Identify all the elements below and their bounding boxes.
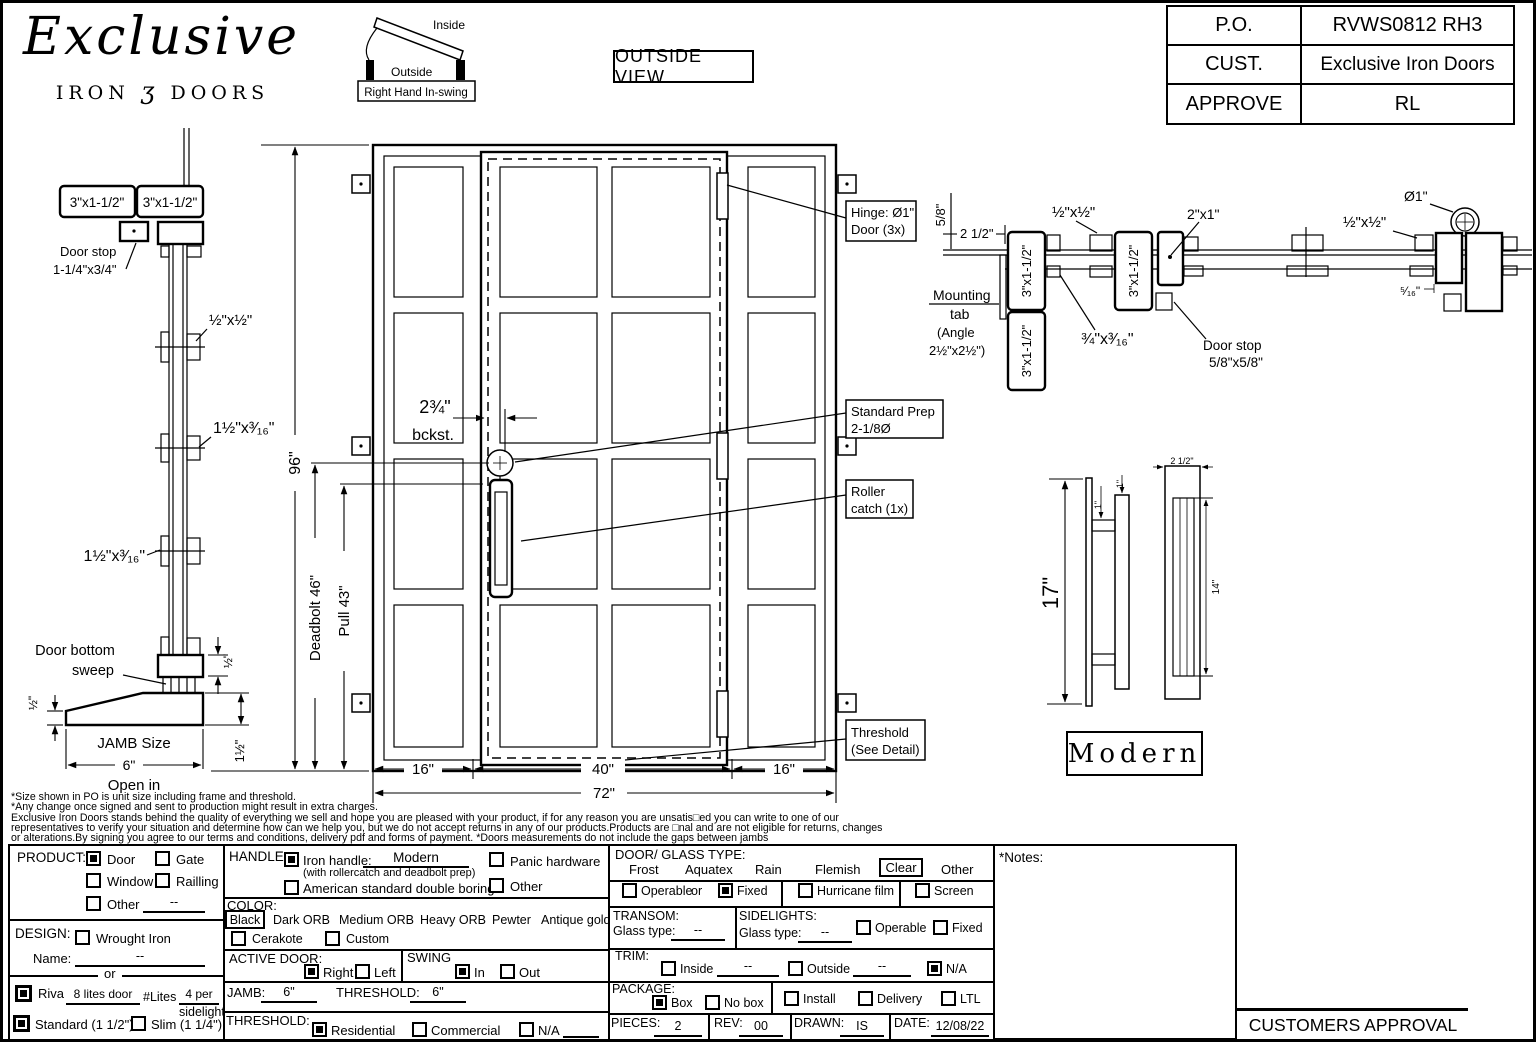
roller-callout-2: catch (1x) (851, 501, 908, 516)
lites-label: #Lites (143, 991, 176, 1005)
sidelights-label: SIDELIGHTS: (739, 910, 817, 924)
jamb-size-label: JAMB Size (97, 735, 170, 752)
jamb-clip-a-label: ½"x½" (209, 312, 252, 329)
section-stop-label-1: Door stop (1203, 338, 1262, 353)
package-box-checkbox[interactable] (652, 995, 667, 1010)
trim-outside-label: Outside (807, 963, 850, 977)
pieces-label: PIECES: (611, 1017, 660, 1031)
design-name-value[interactable]: -- (75, 949, 205, 967)
install-checkbox[interactable] (784, 991, 799, 1006)
sidelights-glass-value[interactable]: -- (798, 925, 852, 943)
backset-value: 2¾" (419, 397, 450, 417)
swing-out-label: Out (519, 966, 540, 980)
jamb-door-bottom (158, 655, 203, 677)
cust-key: CUST. (1205, 53, 1263, 76)
mount-label-4: 2½"x2½") (929, 343, 985, 358)
glass-flemish[interactable]: Flemish (815, 863, 861, 877)
outside-view-label: OUTSIDE VIEW (613, 50, 754, 83)
color-black-option[interactable]: Black (225, 910, 265, 929)
approve-key-cell: APPROVE (1166, 83, 1302, 125)
approve-value: RL (1395, 93, 1421, 116)
product-gate-label: Gate (176, 853, 204, 867)
trim-na-label: N/A (946, 963, 967, 977)
glass-rain[interactable]: Rain (755, 863, 782, 877)
trim-inside-checkbox[interactable] (661, 961, 676, 976)
jamb-label: JAMB: (227, 986, 265, 1000)
active-left-checkbox[interactable] (355, 964, 370, 979)
transom-glass-value[interactable]: -- (671, 923, 725, 941)
rev-value[interactable]: 00 (739, 1019, 783, 1037)
american-boring-checkbox[interactable] (284, 880, 299, 895)
hinge-callout-2: Door (3x) (851, 222, 905, 237)
sidelights-fixed-label: Fixed (952, 922, 983, 936)
mount-label-1: Mounting (933, 287, 991, 303)
threshold-callout-2: (See Detail) (851, 742, 920, 757)
iron-handle-checkbox[interactable] (284, 852, 299, 867)
threshold-na-value[interactable] (563, 1020, 599, 1038)
mount-label-3: (Angle (937, 325, 975, 340)
glass-clear-option[interactable]: Clear (879, 858, 923, 877)
product-door-checkbox[interactable] (86, 851, 101, 866)
section-clip-a-label: ½"x½" (1052, 204, 1095, 221)
dim-5-8: 5/8" (933, 203, 948, 226)
color-pewter[interactable]: Pewter (492, 914, 531, 928)
dim-one-half: 1½" (232, 739, 247, 762)
jamb-size-value: 6" (123, 757, 136, 773)
trim-outside-value[interactable]: -- (853, 959, 911, 977)
dim-2-1-2: 2 1/2" (960, 226, 994, 241)
swing-diagram: Inside Outside Right Hand In-swing (351, 8, 481, 103)
iron-handle-note: (with rollercatch and deadbolt prep) (303, 867, 475, 879)
delivery-checkbox[interactable] (858, 991, 873, 1006)
product-other-label: Other (107, 898, 140, 912)
logo-doors: DOORS (170, 82, 269, 104)
color-heavyorb[interactable]: Heavy ORB (420, 914, 486, 928)
po-key: P.O. (1215, 14, 1252, 37)
section-tube-c-label: 3"x1-1/2" (1126, 244, 1141, 297)
glass-type-label: DOOR/ GLASS TYPE: (615, 848, 746, 862)
handle-backplate (1086, 478, 1092, 706)
swing-right-jamb (456, 60, 465, 80)
handle-bar (1115, 495, 1129, 689)
threshold-ramp (66, 693, 203, 725)
trim-inside-value[interactable]: -- (717, 959, 779, 977)
dim-14: 14" (1211, 579, 1222, 594)
jamb-doorstop-label-1: Door stop (60, 244, 116, 259)
design-name-label: Name: (33, 952, 71, 966)
po-value: RVWS0812 RH3 (1333, 14, 1483, 37)
package-box-label: Box (671, 997, 693, 1011)
screen-label: Screen (934, 885, 974, 899)
backset-label: bckst. (412, 427, 454, 444)
jamb-section-detail: 5/8" 2 1/2" Mounting tab (Angle 2½"x2½")… (923, 168, 1535, 403)
dim-deadbolt: Deadbolt 46" (307, 575, 324, 661)
product-railing-label: Railling (176, 875, 219, 889)
mount-label-2: tab (950, 306, 970, 322)
riva-checkbox[interactable] (15, 985, 32, 1002)
cust-value-cell: Exclusive Iron Doors (1300, 44, 1515, 85)
swing-inside-label: Inside (433, 18, 465, 32)
section-bar-label: 2"x1" (1187, 206, 1220, 222)
dim-40: 40" (592, 761, 614, 778)
riva-label: Riva (38, 987, 64, 1001)
jamb-value[interactable]: 6" (261, 985, 317, 1003)
panic-checkbox[interactable] (489, 852, 504, 867)
threshold-callout-1: Threshold (851, 725, 909, 740)
american-boring-label: American standard double boring (303, 882, 495, 896)
design-wrought-checkbox[interactable] (75, 930, 90, 945)
screen-checkbox[interactable] (915, 883, 930, 898)
swing-caption: Right Hand In-swing (364, 87, 468, 99)
swing-outside-label: Outside (391, 65, 433, 79)
commercial-checkbox[interactable] (412, 1022, 427, 1037)
prep-callout-1: Standard Prep (851, 404, 935, 419)
drawn-label: DRAWN: (794, 1017, 844, 1031)
disclaimer-line-5: or alterations.By signing you agree to o… (11, 833, 791, 843)
delivery-label: Delivery (877, 993, 922, 1007)
sidelights-fixed-checkbox[interactable] (933, 920, 948, 935)
jamb-head-section (158, 222, 203, 244)
cerakote-label: Cerakote (252, 933, 303, 947)
lites-value[interactable]: 4 per (179, 987, 219, 1005)
approve-key: APPROVE (1186, 93, 1283, 116)
transom-label: TRANSOM: (613, 910, 679, 924)
handle-label: HANDLE: (229, 850, 288, 865)
hinge-callout-1: Hinge: Ø1" (851, 205, 915, 220)
section-flat-a-label: ¾"x³⁄₁₆" (1081, 331, 1134, 348)
glass-other[interactable]: Other (941, 863, 974, 877)
swing-label: SWING (407, 951, 451, 965)
threshold-label: THRESHOLD: (226, 1014, 310, 1028)
fixed-label: Fixed (737, 885, 768, 899)
color-darkorb[interactable]: Dark ORB (273, 914, 330, 928)
door-front-view: 96" Deadbolt 46" Pull 43" 2¾" bckst. 16"… (253, 128, 963, 820)
residential-checkbox[interactable] (312, 1022, 327, 1037)
glass-frost[interactable]: Frost (629, 863, 659, 877)
dim-pull: Pull 43" (336, 585, 353, 636)
threshold-na-label: N/A (538, 1024, 560, 1038)
standard-label: Standard (1 1/2") (35, 1018, 134, 1032)
operable-checkbox[interactable] (622, 883, 637, 898)
slim-checkbox[interactable] (131, 1016, 146, 1031)
section-tube-a-label: 3"x1-1/2" (1019, 244, 1034, 297)
section-stop-label-2: 5/8"x5/8" (1209, 355, 1263, 370)
swing-arc (366, 28, 377, 60)
sweep-label-1: Door bottom (35, 643, 115, 659)
threshold-na-checkbox[interactable] (519, 1022, 534, 1037)
product-railing-checkbox[interactable] (155, 873, 170, 888)
disclaimer: *Size shown in PO is unit size including… (11, 792, 791, 843)
handle-detail: 17" 1" 1" 2 1/2" 14" (1038, 453, 1223, 718)
riva-value[interactable]: 8 lites door (66, 987, 140, 1005)
date-label: DATE: (894, 1017, 930, 1031)
sidelights-glass-label: Glass type: (739, 927, 802, 941)
active-right-checkbox[interactable] (304, 964, 319, 979)
logo-iron: IRON (56, 82, 130, 104)
operable-label: Operable (641, 885, 692, 899)
dim-1-a: 1" (1093, 501, 1103, 509)
package-nobox-label: No box (724, 997, 764, 1011)
trim-inside-label: Inside (680, 963, 713, 977)
fixed-checkbox[interactable] (718, 883, 733, 898)
design-or-label: or (98, 967, 122, 981)
swing-out-checkbox[interactable] (500, 964, 515, 979)
hurricane-checkbox[interactable] (798, 883, 813, 898)
section-clip-b-label: ½"x½" (1343, 214, 1386, 231)
install-label: Install (803, 993, 836, 1007)
dim-2-1-2-handle: 2 1/2" (1170, 456, 1193, 466)
glass-aquatex[interactable]: Aquatex (685, 863, 733, 877)
custom-checkbox[interactable] (325, 931, 340, 946)
design-wrought-label: Wrought Iron (96, 932, 171, 946)
package-nobox-checkbox[interactable] (705, 995, 720, 1010)
commercial-label: Commercial (431, 1024, 500, 1038)
color-mediumorb[interactable]: Medium ORB (339, 914, 414, 928)
drawn-value[interactable]: IS (840, 1019, 884, 1037)
product-other-value[interactable]: -- (143, 895, 205, 913)
active-door-leaf (481, 152, 727, 765)
hinge-leaf-large (1466, 233, 1502, 311)
pieces-value[interactable]: 2 (654, 1019, 702, 1037)
operable-or-label: or (691, 885, 702, 899)
handle-front-view (1165, 466, 1200, 699)
sweep-label-2: sweep (72, 663, 114, 679)
dim-96: 96" (287, 451, 304, 474)
swing-left-jamb (366, 60, 374, 80)
handle-other-checkbox[interactable] (489, 878, 504, 893)
jamb-clip-c-label: 1½"x³⁄₁₆" (84, 548, 145, 565)
ltl-checkbox[interactable] (941, 991, 956, 1006)
product-window-label: Window (107, 875, 153, 889)
transom-glass-label: Glass type: (613, 925, 676, 939)
trim-na-checkbox[interactable] (927, 961, 942, 976)
dim-half-right: ½" (221, 654, 235, 668)
po-value-cell: RVWS0812 RH3 (1300, 5, 1515, 46)
prep-callout-2: 2-1/8Ø (851, 421, 891, 436)
notes-label: *Notes: (999, 851, 1043, 866)
panic-label: Panic hardware (510, 855, 600, 869)
handle-other-label: Other (510, 880, 543, 894)
logo-ornament-icon: ʒ (141, 77, 160, 105)
trim-label: TRIM: (615, 950, 649, 964)
trim-outside-checkbox[interactable] (788, 961, 803, 976)
residential-label: Residential (331, 1024, 395, 1038)
jamb-tube-b-label: 3"x1-1/2" (143, 195, 198, 210)
jamb-tube-a-label: 3"x1-1/2" (70, 195, 125, 210)
product-other-checkbox[interactable] (86, 896, 101, 911)
hurricane-label: Hurricane film (817, 885, 894, 899)
dim-5-16: ⁵⁄₁₆" (1400, 284, 1420, 298)
jamb-threshold-label: THRESHOLD: (336, 986, 420, 1000)
logo-script: Exclusive (23, 7, 300, 67)
swing-in-checkbox[interactable] (455, 964, 470, 979)
approve-value-cell: RL (1300, 83, 1515, 125)
product-label: PRODUCT: (17, 851, 86, 866)
section-tube-b-label: 3"x1-1/2" (1019, 324, 1034, 377)
handle-style-label: Modern (1066, 731, 1203, 776)
po-key-cell: P.O. (1166, 5, 1302, 46)
dim-16-right: 16" (773, 761, 795, 778)
dim-1-b: 1" (1115, 480, 1125, 488)
hinge-leaf-small (1436, 233, 1462, 283)
door-pull-handle (490, 480, 512, 597)
slim-label: Slim (1 1/4") (151, 1018, 222, 1032)
approval-label: CUSTOMERS APPROVAL (1238, 1015, 1468, 1036)
drawing-sheet: Exclusive IRON ʒ DOORS Inside Outside Ri… (0, 0, 1536, 1042)
logo-subtitle: IRON ʒ DOORS (55, 77, 270, 105)
sidelights-operable-label: Operable (875, 922, 926, 936)
active-right-label: Right (323, 966, 353, 980)
product-gate-checkbox[interactable] (155, 851, 170, 866)
active-left-label: Left (374, 966, 396, 980)
design-label: DESIGN: (15, 927, 71, 942)
dim-17: 17" (1038, 577, 1063, 609)
hinge-dia-label: Ø1" (1404, 188, 1428, 204)
jamb-doorstop-label-2: 1-1/4"x3/4" (53, 262, 117, 277)
product-window-checkbox[interactable] (86, 873, 101, 888)
ltl-label: LTL (960, 993, 981, 1007)
dim-16-left: 16" (412, 761, 434, 778)
cust-value: Exclusive Iron Doors (1320, 54, 1494, 76)
roller-callout-1: Roller (851, 484, 886, 499)
custom-label: Custom (346, 933, 389, 947)
cerakote-checkbox[interactable] (231, 931, 246, 946)
iron-handle-value[interactable]: Modern (363, 850, 469, 868)
product-door-label: Door (107, 853, 135, 867)
dim-half-left: ½" (26, 696, 40, 710)
jamb-threshold-value[interactable]: 6" (410, 985, 466, 1003)
sidelights-operable-checkbox[interactable] (856, 920, 871, 935)
date-value[interactable]: 12/08/22 (931, 1019, 989, 1037)
standard-checkbox[interactable] (13, 1015, 30, 1032)
color-antiquegold[interactable]: Antique gold (541, 914, 611, 928)
notes-cell (993, 844, 1237, 1040)
approval-signature-line[interactable] (1235, 1008, 1468, 1011)
swing-in-label: In (474, 966, 485, 980)
cust-key-cell: CUST. (1166, 44, 1302, 85)
